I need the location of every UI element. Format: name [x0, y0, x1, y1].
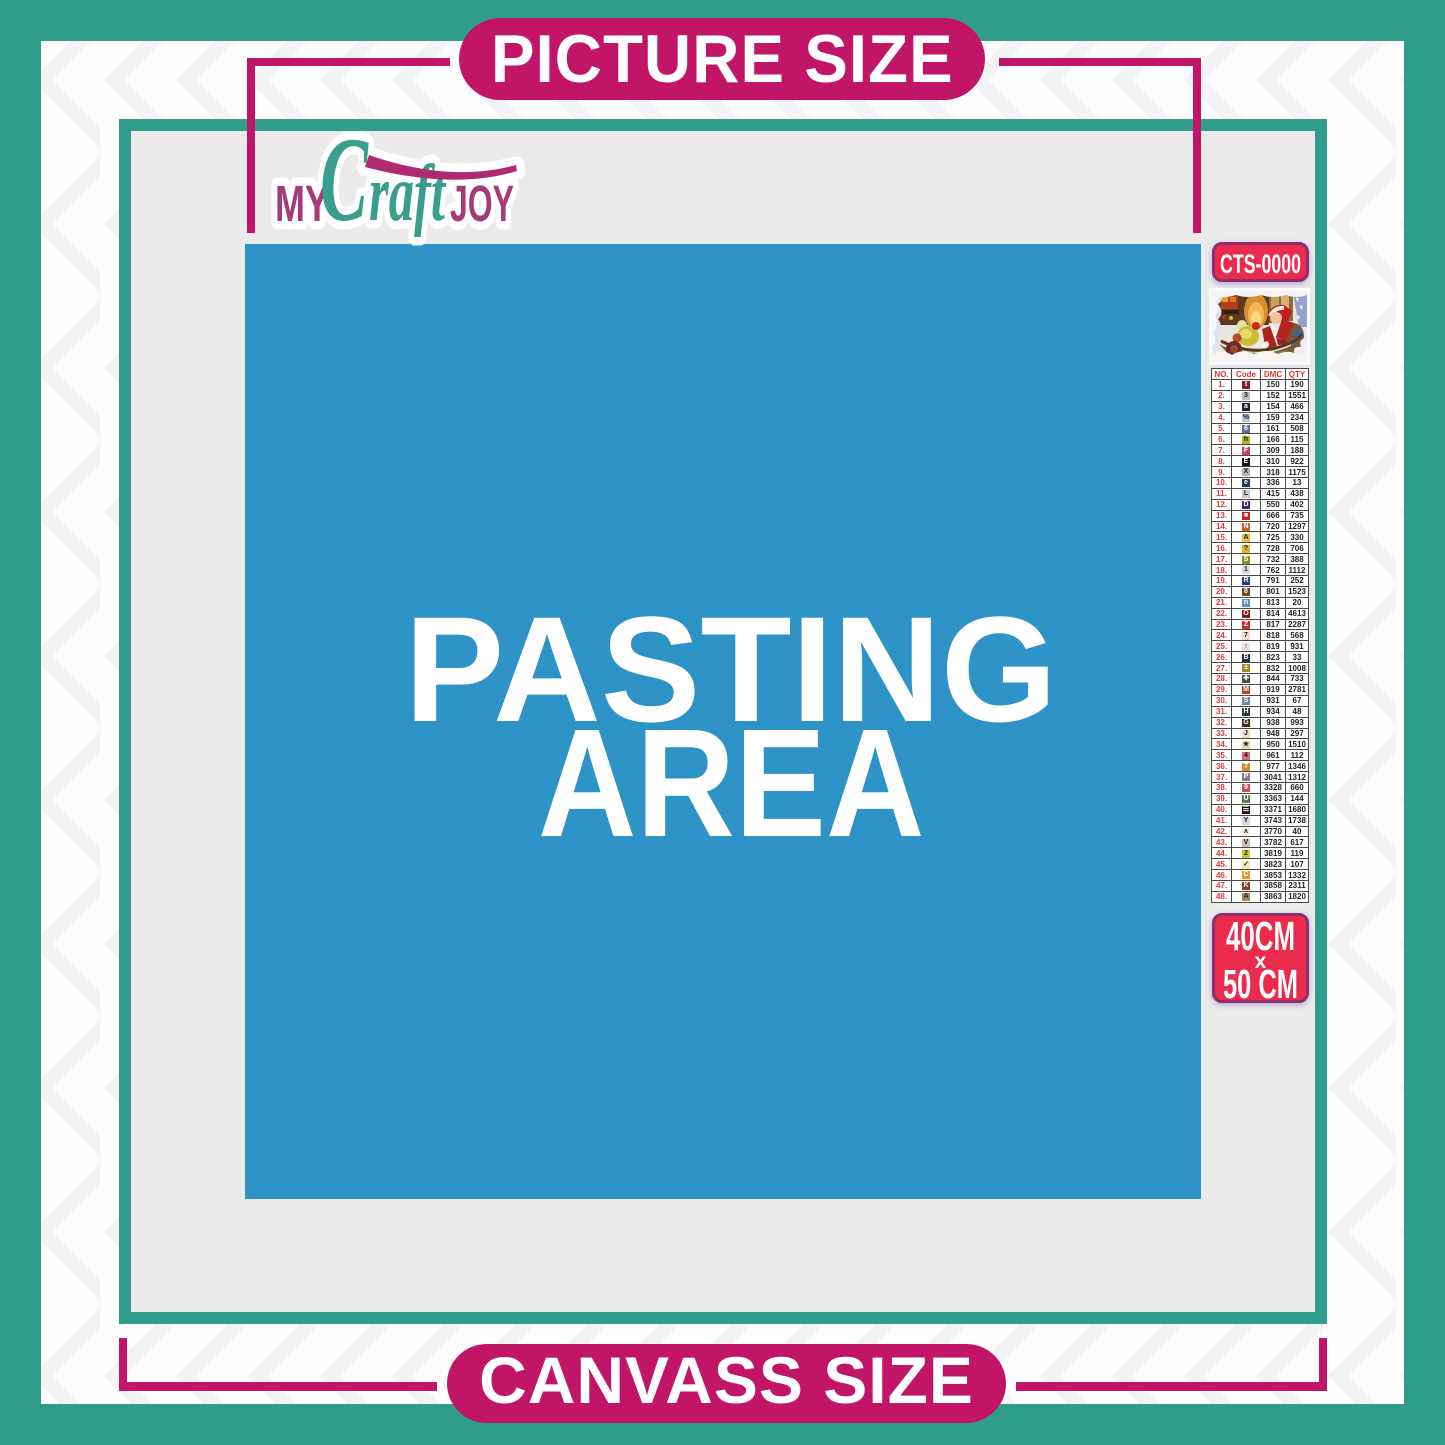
- svg-text:JOY: JOY: [450, 175, 514, 232]
- svg-text:50 CM: 50 CM: [1223, 961, 1298, 1000]
- svg-text:CTS-0000: CTS-0000: [1220, 249, 1301, 279]
- svg-text:C: C: [320, 130, 369, 247]
